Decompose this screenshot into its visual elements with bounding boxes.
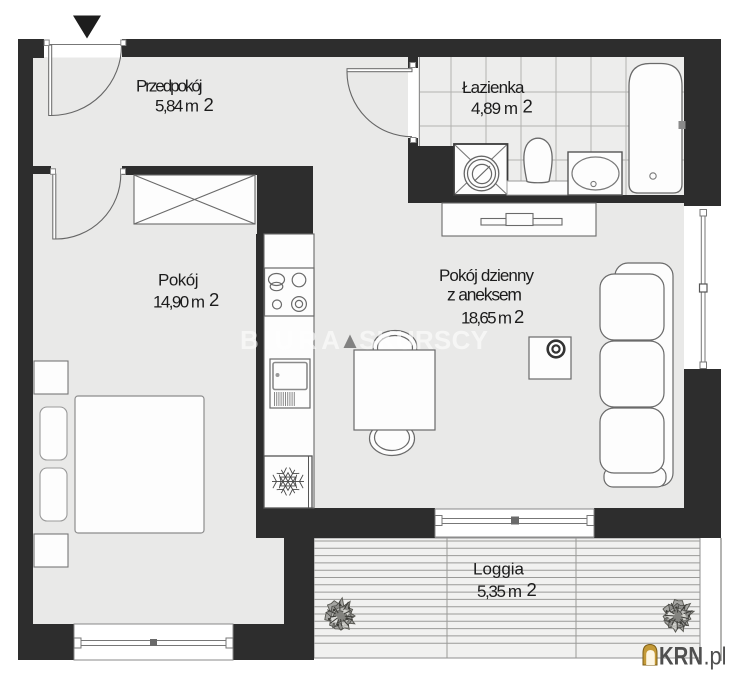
- svg-text:2: 2: [523, 96, 533, 117]
- svg-text:Przedpokój: Przedpokój: [136, 77, 203, 96]
- svg-text:BIURA: BIURA: [240, 325, 340, 355]
- svg-text:5,35 m: 5,35 m: [477, 582, 522, 601]
- svg-text:2: 2: [527, 579, 537, 600]
- svg-text:2: 2: [514, 306, 524, 327]
- svg-text:.pl: .pl: [704, 643, 727, 671]
- svg-text:2: 2: [209, 289, 219, 310]
- svg-text:Pokój: Pokój: [158, 271, 199, 290]
- svg-text:Loggia: Loggia: [473, 560, 525, 579]
- svg-text:18,65 m: 18,65 m: [461, 309, 512, 328]
- svg-text:2: 2: [204, 94, 214, 115]
- svg-text:SKURSCY: SKURSCY: [359, 325, 488, 355]
- svg-text:Łazienka: Łazienka: [462, 78, 525, 97]
- svg-text:Pokój dzienny: Pokój dzienny: [439, 266, 535, 285]
- svg-text:14,90 m: 14,90 m: [153, 293, 205, 312]
- svg-text:4,89 m: 4,89 m: [471, 99, 518, 118]
- svg-text:5,84 m: 5,84 m: [155, 97, 199, 116]
- svg-text:KRN: KRN: [659, 643, 703, 671]
- svg-text:z aneksem: z aneksem: [447, 285, 522, 305]
